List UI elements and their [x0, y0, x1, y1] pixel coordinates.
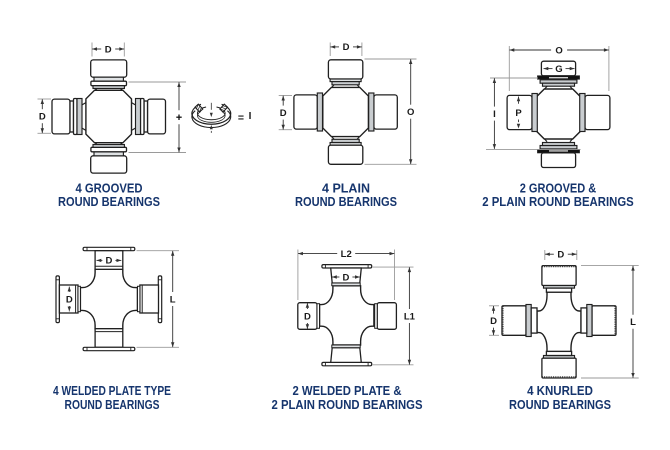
svg-text:O: O: [555, 45, 562, 56]
svg-text:2 GROOVED &: 2 GROOVED &: [520, 181, 597, 195]
svg-text:L: L: [170, 294, 176, 305]
svg-text:=: =: [238, 112, 244, 124]
svg-text:ROUND BEARINGS: ROUND BEARINGS: [509, 398, 611, 412]
svg-text:D: D: [66, 294, 73, 305]
svg-text:ROUND BEARINGS: ROUND BEARINGS: [295, 195, 397, 209]
svg-text:D: D: [39, 112, 46, 123]
svg-text:I: I: [249, 111, 252, 122]
svg-text:D: D: [105, 256, 112, 267]
svg-text:O: O: [407, 107, 414, 118]
svg-text:G: G: [555, 64, 562, 75]
svg-text:4 KNURLED: 4 KNURLED: [527, 384, 593, 398]
svg-text:D: D: [105, 44, 112, 55]
svg-text:D: D: [490, 316, 497, 327]
svg-text:4 WELDED PLATE TYPE: 4 WELDED PLATE TYPE: [53, 384, 171, 398]
svg-text:2 WELDED PLATE &: 2 WELDED PLATE &: [293, 384, 402, 398]
svg-text:2 PLAIN ROUND BEARINGS: 2 PLAIN ROUND BEARINGS: [482, 195, 634, 209]
svg-text:L: L: [630, 317, 636, 328]
svg-text:I: I: [493, 109, 496, 120]
svg-text:D: D: [343, 42, 350, 53]
svg-text:L2: L2: [341, 249, 352, 260]
svg-text:D: D: [304, 311, 311, 322]
svg-text:D: D: [342, 272, 349, 283]
svg-text:4 GROOVED: 4 GROOVED: [76, 181, 143, 195]
svg-text:D: D: [557, 250, 564, 261]
svg-text:L1: L1: [404, 311, 416, 322]
svg-text:2 PLAIN ROUND BEARINGS: 2 PLAIN ROUND BEARINGS: [272, 398, 423, 412]
svg-text:P: P: [515, 108, 522, 119]
svg-text:4 PLAIN: 4 PLAIN: [322, 181, 370, 195]
svg-text:ROUND BEARINGS: ROUND BEARINGS: [65, 398, 160, 412]
svg-text:ROUND BEARINGS: ROUND BEARINGS: [58, 195, 160, 209]
svg-text:D: D: [280, 108, 287, 119]
